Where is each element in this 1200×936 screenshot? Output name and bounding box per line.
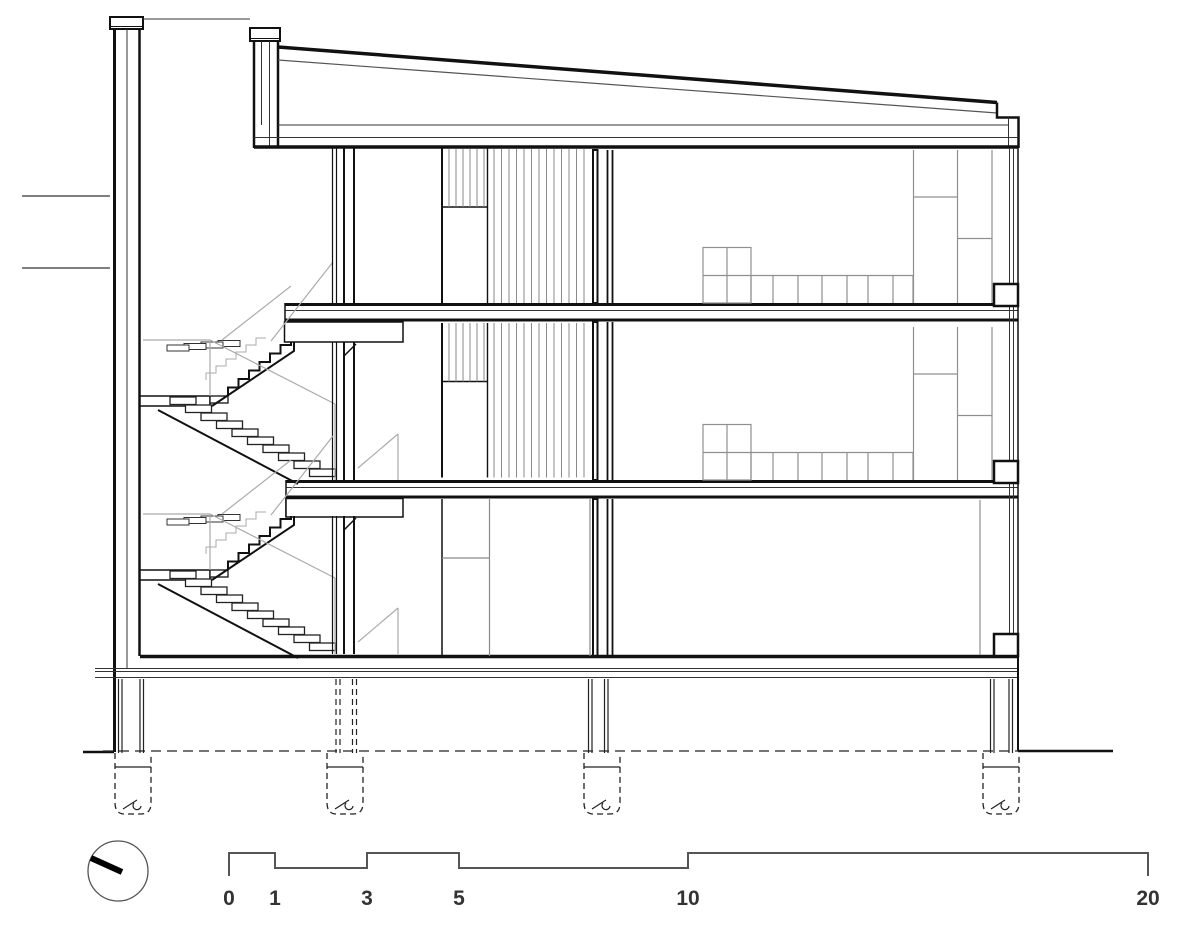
furniture-mid-floor: [703, 327, 992, 480]
building-section-drawing: 0 1 3 5 10 20: [0, 0, 1200, 936]
mono-pitch-roof: [254, 47, 1019, 148]
scale-label-3: 3: [361, 887, 373, 910]
left-wall: [22, 17, 143, 752]
slab-edge-notch: [994, 461, 1018, 483]
scale-label-1: 1: [269, 887, 281, 910]
right-facade: [994, 148, 1018, 751]
corridor-wall: [608, 150, 613, 656]
scale-label-0: 0: [223, 887, 235, 910]
architectural-section-sheet: 0 1 3 5 10 20: [0, 0, 1200, 936]
downstand-beam: [285, 322, 404, 342]
north-indicator: [88, 841, 148, 901]
scale-bar-line: [229, 853, 1148, 876]
scale-label-20: 20: [1136, 887, 1159, 910]
scale-label-10: 10: [676, 887, 699, 910]
ground-floor-glazed-partition: [442, 499, 590, 656]
downstand-beam: [286, 499, 403, 518]
slab-edge-notch: [994, 634, 1018, 656]
louvre-wall-top-floor: [442, 149, 584, 304]
scale-bar: 0 1 3 5 10 20: [223, 853, 1160, 910]
stair-level1-to-level2: [140, 262, 398, 484]
foundation: [83, 679, 1113, 814]
furniture-top-floor: [703, 150, 992, 303]
slab-edge-notch: [994, 284, 1018, 306]
top-floor-stair-edge: [333, 149, 355, 304]
roof-parapet: [143, 19, 280, 148]
piers: [119, 679, 1013, 753]
scale-label-5: 5: [453, 887, 465, 910]
hidden-pier: [336, 679, 357, 753]
louvre-wall-mid-floor: [442, 323, 584, 478]
mid-columns: [593, 150, 613, 656]
